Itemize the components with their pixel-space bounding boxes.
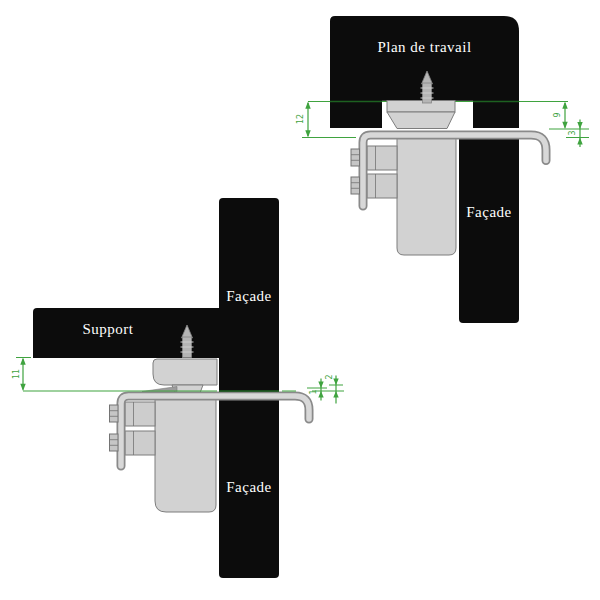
- facade-panel-top-diagram: [459, 138, 519, 323]
- bracket-body: [155, 396, 216, 512]
- facade-label-bottom-upper: Façade: [219, 288, 279, 305]
- support-label: Support: [38, 321, 178, 338]
- diagram-canvas: [0, 0, 600, 600]
- dim-value-3: 3: [564, 125, 580, 141]
- bottom-diagram: [16, 198, 344, 578]
- bolt-assembly: [367, 146, 397, 198]
- facade-panel-bottom-diagram: [219, 198, 279, 578]
- insert-taper: [387, 112, 455, 129]
- dim-value-12: 12: [292, 111, 308, 127]
- bracket-body: [397, 137, 456, 255]
- dim-value-2: 2: [321, 369, 337, 385]
- mounting-diagram: Plan de travail Façade Support Façade Fa…: [0, 0, 600, 600]
- top-diagram: [302, 16, 589, 323]
- facade-label-bottom-lower: Façade: [219, 479, 279, 496]
- dim-value-11: 11: [8, 366, 24, 382]
- cam-plate: [153, 359, 217, 385]
- dim-value-1: 1: [305, 384, 321, 400]
- insert-plate: [387, 101, 455, 113]
- bolt-assembly: [125, 402, 155, 455]
- facade-label-top: Façade: [459, 204, 519, 221]
- dim-value-9: 9: [549, 107, 565, 123]
- bolt-heads: [351, 149, 360, 194]
- worktop-label: Plan de travail: [330, 39, 519, 56]
